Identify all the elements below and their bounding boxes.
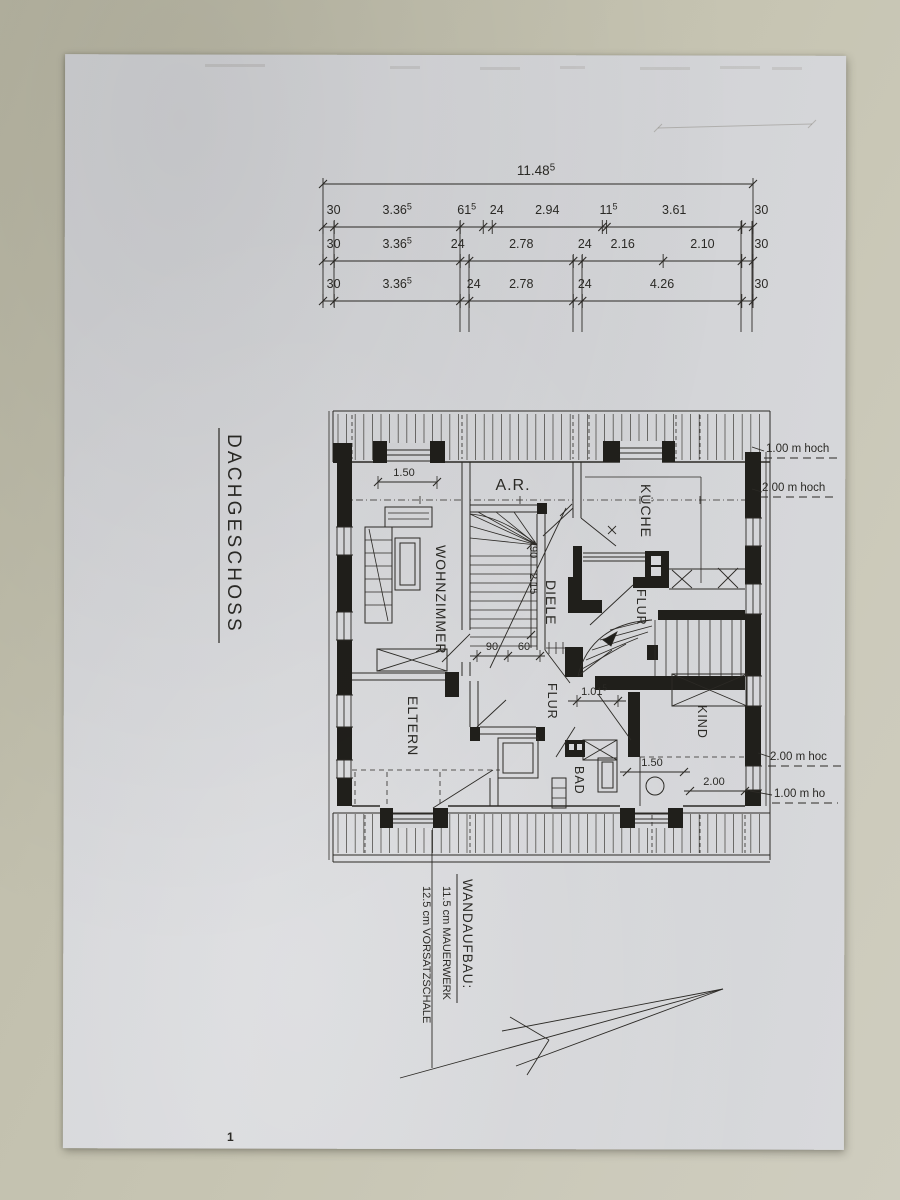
dim-treppe-lauf: 2.15 — [527, 573, 539, 594]
dim-chain-value: 4.26 — [650, 277, 674, 291]
paper-sheet — [63, 54, 846, 1150]
dim-chain-value: 30 — [754, 277, 768, 291]
page-number: 1 — [227, 1130, 234, 1144]
wall-note-line2: 12.5 cm VORSATZSCHALE — [420, 886, 432, 1023]
room-label-wohnzimmer: WOHNZIMMER — [433, 545, 449, 655]
dim-flur-breite: 1.015 — [581, 684, 607, 699]
floor-plan-drawing: DACHGESCHOSS WANDAUFBAU: 11.5 cm MAUERWE… — [0, 0, 900, 1200]
dim-chain-value: 30 — [754, 237, 768, 251]
dim-chain-value: 2.78 — [509, 237, 533, 251]
room-label-diele: DIELE — [543, 580, 559, 625]
room-label-abstellraum: A.R. — [495, 477, 530, 494]
dim-chain-value: 2.10 — [690, 237, 714, 251]
dim-chain-value: 3.365 — [383, 202, 412, 218]
room-label-flur-oben: FLUR — [634, 589, 648, 626]
dim-chain-value: 24 — [578, 237, 592, 251]
plan-text: DACHGESCHOSS WANDAUFBAU: 11.5 cm MAUERWE… — [223, 163, 829, 1145]
height-note-hoehe-oben-2: 2.00 m hoch — [762, 482, 825, 494]
dim-chain-value: 2.78 — [509, 277, 533, 291]
wall-note-line1: 11.5 cm MAUERWERK — [440, 886, 452, 1001]
dim-chain-value: 24 — [451, 237, 465, 251]
dim-tuer-90: 90 — [486, 641, 498, 653]
dim-chain-value: 30 — [327, 277, 341, 291]
dim-chain-value: 615 — [457, 202, 476, 218]
dim-total: 11.485 — [517, 163, 555, 179]
plan-title: DACHGESCHOSS — [223, 434, 244, 634]
height-note-hoehe-unten-1: 1.00 m ho — [774, 788, 825, 800]
dim-kind-fenster: 1.50 — [641, 757, 662, 769]
room-label-flur-unten: FLUR — [545, 683, 559, 720]
height-note-hoehe-unten-2: 2.00 m hoc — [770, 751, 827, 763]
dim-chain-value: 2.94 — [535, 203, 559, 217]
dim-chain-value: 3.365 — [383, 276, 412, 292]
dim-chain-value: 2.16 — [611, 237, 635, 251]
room-label-eltern: ELTERN — [405, 696, 421, 756]
room-label-kueche: KÜCHE — [638, 484, 655, 538]
dim-chain-value: 30 — [327, 203, 341, 217]
plan-linework — [205, 64, 841, 1078]
dim-chain-value: 115 — [599, 202, 617, 218]
dim-fenster-wohnzimmer: 1.50 — [393, 467, 414, 479]
dim-treppe-breite: 90 — [527, 546, 539, 558]
dim-chain-value: 3.61 — [662, 203, 686, 217]
room-label-kind: KIND — [695, 705, 709, 739]
dim-tuer-60: 60 — [518, 641, 530, 653]
dim-chain-value: 30 — [754, 203, 768, 217]
dim-chain-value: 30 — [327, 237, 341, 251]
dim-kind-nische: 2.00 — [703, 776, 724, 788]
photo-scene: DACHGESCHOSS WANDAUFBAU: 11.5 cm MAUERWE… — [0, 0, 900, 1200]
dim-chain-value: 3.365 — [383, 236, 412, 252]
dim-chain-value: 24 — [578, 277, 592, 291]
dim-chain-value: 24 — [467, 277, 481, 291]
wall-note-heading: WANDAUFBAU: — [460, 879, 475, 989]
room-label-bad: BAD — [572, 766, 586, 795]
height-note-hoehe-oben-1: 1.00 m hoch — [766, 443, 829, 455]
dim-chain-value: 24 — [490, 203, 504, 217]
